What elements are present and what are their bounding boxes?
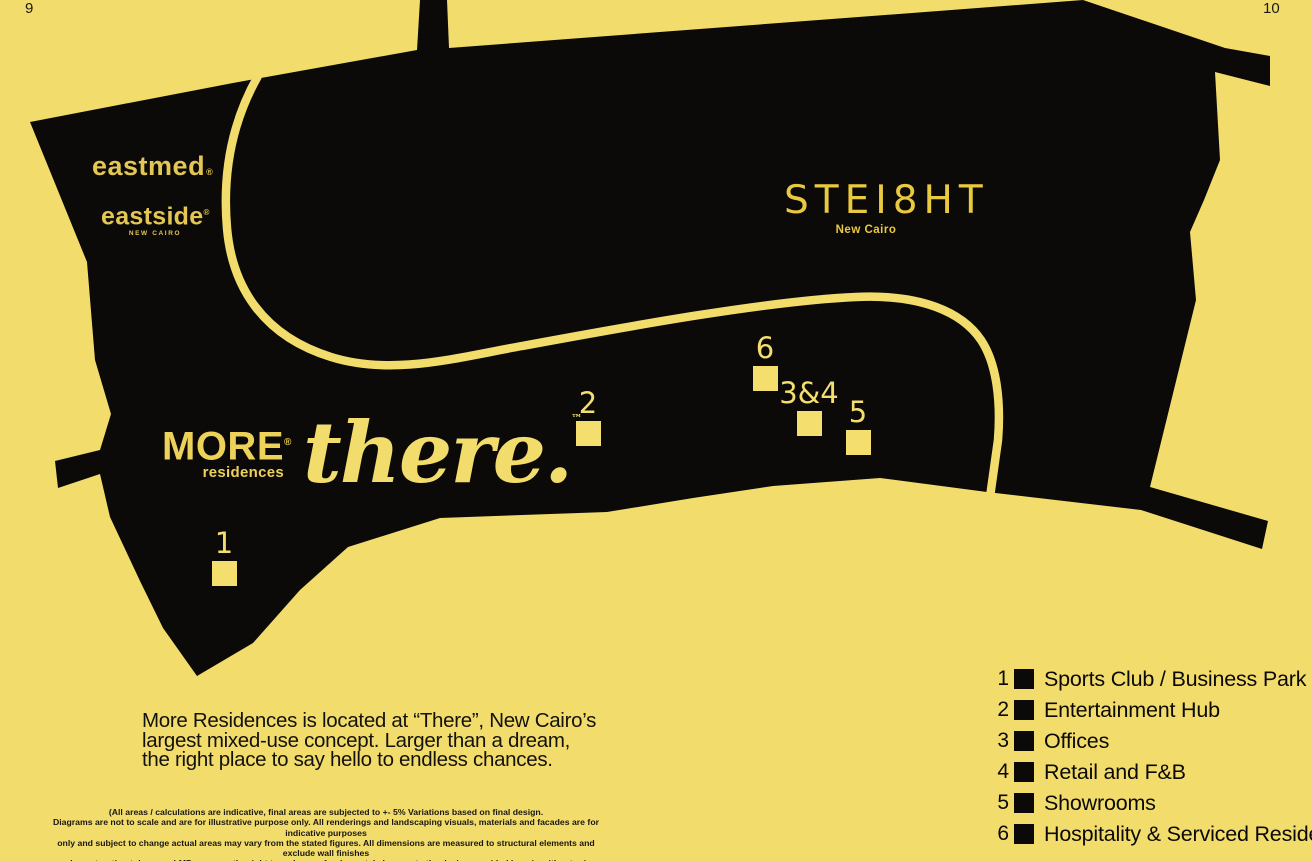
more-logo-text: MORE [162, 424, 284, 468]
map-marker-label: 1 [192, 527, 256, 559]
description-line: the right place to say hello to endless … [142, 750, 596, 770]
more-residences-logo: MORE® residences [162, 423, 284, 481]
registered-mark-icon: ® [203, 208, 209, 217]
legend-number: 3 [991, 729, 1009, 753]
map-marker-label: 2 [556, 387, 620, 419]
legend-label: Entertainment Hub [1044, 698, 1220, 723]
map-marker-2: 2 [556, 387, 620, 446]
steight-logo-tagline: New Cairo [778, 224, 954, 236]
map-marker-square [576, 421, 601, 446]
map-marker-square [797, 411, 822, 436]
map-marker-label: 6 [733, 332, 797, 364]
steight-logo-text: STEI8HT [778, 180, 954, 222]
registered-mark-icon: ® [206, 167, 213, 177]
map-marker-label: 5 [826, 396, 890, 428]
disclaimer-text: (All areas / calculations are indicative… [48, 807, 604, 861]
map-marker-1: 1 [192, 527, 256, 586]
legend-swatch-icon [1014, 762, 1034, 782]
legend-swatch-icon [1014, 793, 1034, 813]
legend-row: 4 Retail and F&B [991, 762, 1312, 782]
registered-mark-icon: ® [284, 437, 292, 448]
map-marker-square [753, 366, 778, 391]
brochure-spread: 9 10 eastmed® eastside® NEW CAIRO MORE® … [0, 0, 1312, 861]
legend-swatch-icon [1014, 700, 1034, 720]
legend-swatch-icon [1014, 824, 1034, 844]
legend-swatch-icon [1014, 731, 1034, 751]
legend-number: 2 [991, 698, 1009, 722]
there-logo-text: there. [303, 403, 571, 502]
disclaimer-line: Diagrams are not to scale and are for il… [48, 817, 604, 838]
disclaimer-line: only and subject to change actual areas … [48, 838, 604, 859]
legend-label: Sports Club / Business Park [1044, 667, 1306, 692]
eastside-logo-text: eastside [101, 202, 203, 230]
legend-number: 6 [991, 822, 1009, 846]
legend-number: 1 [991, 667, 1009, 691]
eastside-logo-tagline: NEW CAIRO [101, 230, 209, 237]
eastmed-logo-text: eastmed [92, 151, 205, 181]
map-marker-square [212, 561, 237, 586]
description-line: More Residences is located at “There”, N… [142, 711, 596, 731]
eastmed-logo: eastmed® [92, 151, 213, 182]
map-marker-5: 5 [826, 396, 890, 455]
legend-label: Showrooms [1044, 791, 1156, 816]
legend-swatch-icon [1014, 669, 1034, 689]
legend-row: 1 Sports Club / Business Park [991, 669, 1312, 689]
legend-number: 5 [991, 791, 1009, 815]
eastside-logo: eastside® NEW CAIRO [101, 200, 209, 237]
legend-label: Offices [1044, 729, 1109, 754]
legend-row: 2 Entertainment Hub [991, 700, 1312, 720]
there-logo: there.™ [303, 374, 582, 498]
legend-number: 4 [991, 760, 1009, 784]
legend-label: Hospitality & Serviced Residences [1044, 822, 1312, 847]
legend-row: 3 Offices [991, 731, 1312, 751]
legend-label: Retail and F&B [1044, 760, 1186, 785]
legend-row: 5 Showrooms [991, 793, 1312, 813]
legend-row: 6 Hospitality & Serviced Residences [991, 824, 1312, 844]
disclaimer-line: (All areas / calculations are indicative… [48, 807, 604, 817]
map-legend: 1 Sports Club / Business Park 2 Entertai… [991, 669, 1312, 855]
map-marker-square [846, 430, 871, 455]
description-paragraph: More Residences is located at “There”, N… [142, 711, 596, 770]
steight-logo: STEI8HT New Cairo [778, 180, 954, 236]
